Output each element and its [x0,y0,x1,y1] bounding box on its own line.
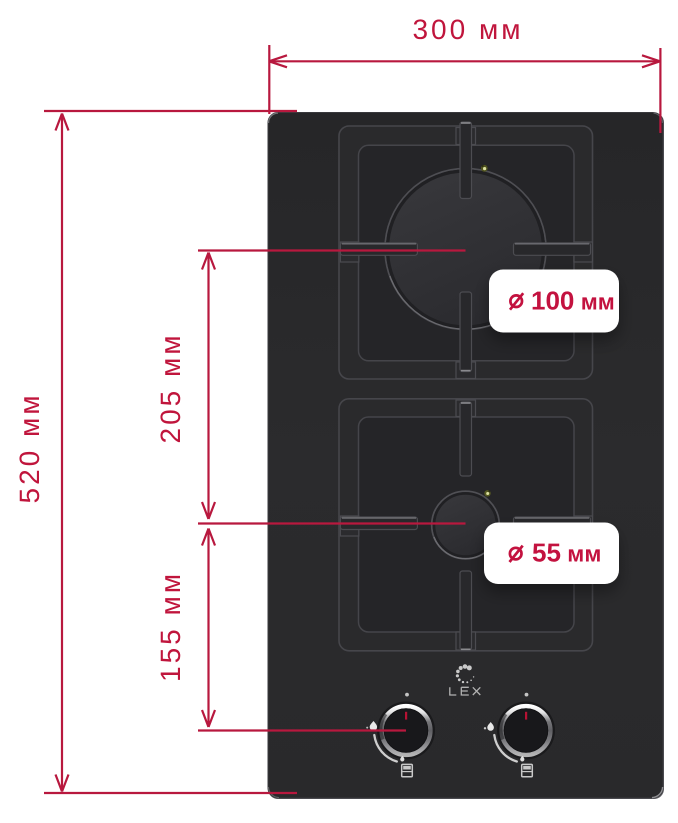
svg-text:520 мм: 520 мм [14,393,45,504]
svg-text:55 мм: 55 мм [532,537,601,567]
svg-text:155 мм: 155 мм [155,571,186,682]
svg-text:100 мм: 100 мм [531,285,615,315]
svg-text:205 мм: 205 мм [155,333,186,444]
svg-text:300 мм: 300 мм [412,14,523,45]
